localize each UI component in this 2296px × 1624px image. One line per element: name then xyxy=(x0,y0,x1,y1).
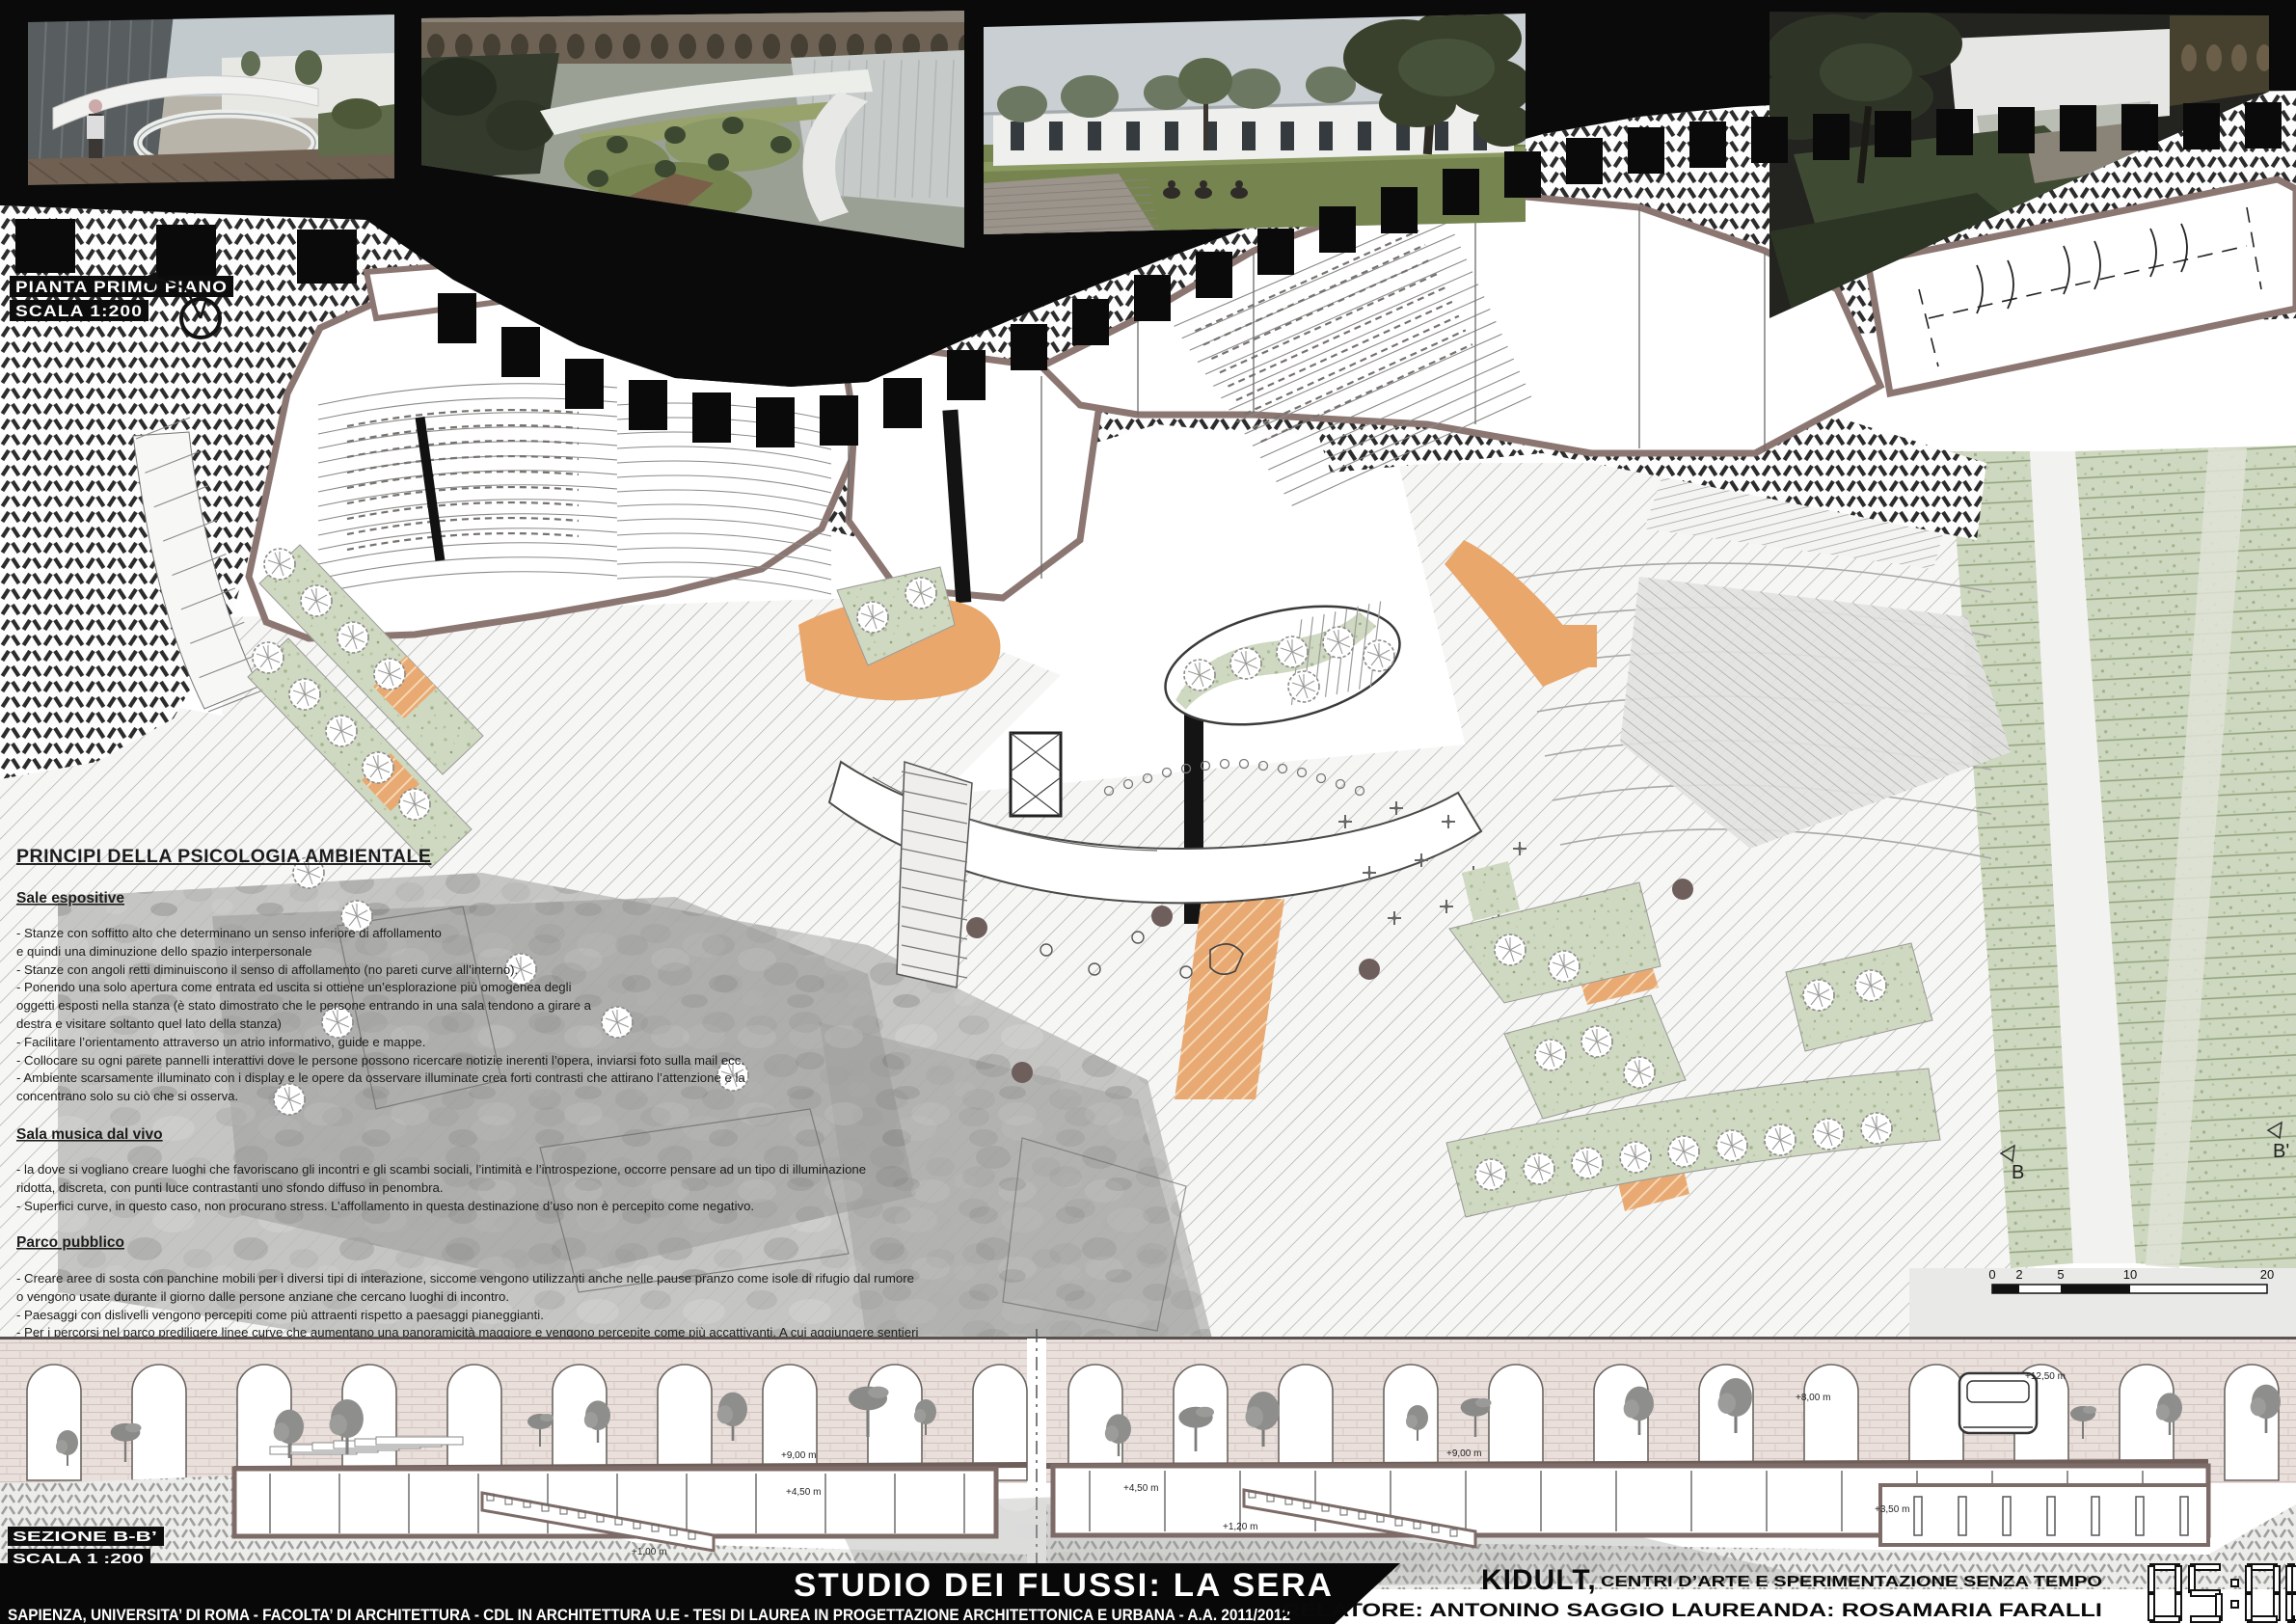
svg-text:B': B' xyxy=(2273,1141,2289,1162)
svg-text:- Ponendo una solo apertura co: - Ponendo una solo apertura come entrata… xyxy=(16,980,572,994)
svg-text:e quindi una diminuzione dello: e quindi una diminuzione dello spazio in… xyxy=(16,944,311,959)
svg-text:oggetti esposti nella stanza (: oggetti esposti nella stanza (è stato di… xyxy=(16,998,592,1013)
svg-text:- la dove si vogliano creare l: - la dove si vogliano creare luoghi che … xyxy=(16,1162,866,1177)
svg-text:+12,50 m: +12,50 m xyxy=(2025,1371,2066,1382)
svg-text:20: 20 xyxy=(2260,1267,2274,1282)
svg-text:+4,50 m: +4,50 m xyxy=(1123,1483,1158,1494)
svg-text:+8,00 m: +8,00 m xyxy=(1796,1393,1830,1403)
svg-text:Parco pubblico: Parco pubblico xyxy=(16,1234,124,1251)
svg-text:PRINCIPI DELLA PSICOLOGIA AMBI: PRINCIPI DELLA PSICOLOGIA AMBIENTALE xyxy=(16,846,431,867)
svg-text:CENTRI D’ARTE E SPERIMENTAZION: CENTRI D’ARTE E SPERIMENTAZIONE SENZA TE… xyxy=(1601,1574,2102,1590)
svg-text:- Stanze con angoli retti dimi: - Stanze con angoli retti diminuiscono i… xyxy=(16,962,518,977)
svg-text:ridotta, discreta, con punti l: ridotta, discreta, con punti luce contra… xyxy=(16,1180,444,1195)
svg-text:+1,20 m: +1,20 m xyxy=(1223,1522,1257,1532)
svg-text:5: 5 xyxy=(2057,1267,2064,1282)
svg-text:STUDIO DEI FLUSSI: LA SERA: STUDIO DEI FLUSSI: LA SERA xyxy=(794,1567,1334,1604)
svg-text:Sala musica dal vivo: Sala musica dal vivo xyxy=(16,1126,163,1143)
svg-text:destra e visitare soltanto que: destra e visitare soltanto quel lato del… xyxy=(16,1016,282,1031)
svg-text:+9,00 m: +9,00 m xyxy=(1446,1448,1481,1459)
svg-text:Sale espositive: Sale espositive xyxy=(16,890,124,907)
svg-text:- Facilitare l’orientamento at: - Facilitare l’orientamento attraverso u… xyxy=(16,1035,425,1049)
svg-text:SEZIONE B-B’: SEZIONE B-B’ xyxy=(13,1529,157,1545)
svg-text:0: 0 xyxy=(1988,1267,1995,1282)
svg-text:KIDULT,: KIDULT, xyxy=(1481,1564,1597,1596)
svg-text:- Stanze con soffitto alto che: - Stanze con soffitto alto che determina… xyxy=(16,926,442,940)
svg-text:PIANTA PRIMO PIANO: PIANTA PRIMO PIANO xyxy=(15,278,228,296)
svg-text:B: B xyxy=(2012,1162,2024,1183)
svg-text:- Paesaggi con dislivelli veng: - Paesaggi con dislivelli vengono percep… xyxy=(16,1308,544,1322)
svg-text:- Creare aree di sosta con pan: - Creare aree di sosta con panchine mobi… xyxy=(16,1271,914,1286)
svg-text:10: 10 xyxy=(2123,1267,2137,1282)
svg-text:- Ambiente scarsamente illumin: - Ambiente scarsamente illuminato con i … xyxy=(16,1070,745,1085)
svg-text:- Collocare su ogni parete pan: - Collocare su ogni parete pannelli inte… xyxy=(16,1053,744,1068)
svg-text:+1,00 m: +1,00 m xyxy=(632,1547,666,1557)
svg-text:SCALA 1:200: SCALA 1:200 xyxy=(15,302,143,320)
svg-text:+3,50 m: +3,50 m xyxy=(1875,1504,1909,1515)
svg-text:+4,50 m: +4,50 m xyxy=(786,1487,821,1498)
svg-text:concentrano solo su ciò che si: concentrano solo su ciò che si osserva. xyxy=(16,1089,238,1103)
svg-text:o vengono usate durante il gio: o vengono usate durante il giorno dalle … xyxy=(16,1289,509,1304)
svg-text:2: 2 xyxy=(2015,1267,2022,1282)
svg-text:RELATORE: ANTONINO SAGGIO LAUR: RELATORE: ANTONINO SAGGIO LAUREANDA: ROS… xyxy=(1283,1601,2102,1621)
svg-text:+9,00 m: +9,00 m xyxy=(781,1450,816,1461)
svg-text:SAPIENZA, UNIVERSITA’ DI ROMA: SAPIENZA, UNIVERSITA’ DI ROMA - FACOLTA’… xyxy=(8,1607,1290,1624)
svg-text:- Superfici curve, in questo c: - Superfici curve, in questo caso, non p… xyxy=(16,1199,754,1213)
